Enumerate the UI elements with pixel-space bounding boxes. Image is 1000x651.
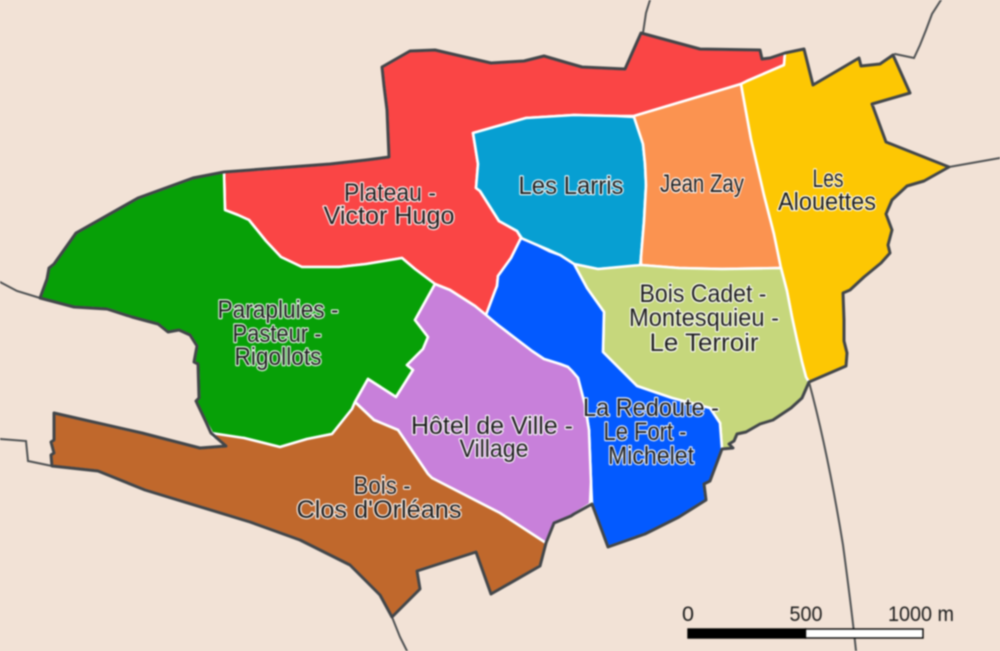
- svg-text:1000 m: 1000 m: [888, 603, 954, 626]
- svg-text:La Redoute -: La Redoute -: [583, 395, 719, 422]
- svg-text:Rigollots: Rigollots: [235, 344, 322, 371]
- svg-text:Le Terroir: Le Terroir: [650, 330, 759, 357]
- svg-text:Bois -: Bois -: [354, 473, 411, 500]
- svg-text:0: 0: [682, 603, 694, 626]
- svg-text:Les Larris: Les Larris: [519, 173, 624, 200]
- svg-text:Clos d'Orléans: Clos d'Orléans: [297, 497, 462, 524]
- svg-text:Le Fort -: Le Fort -: [604, 419, 687, 446]
- svg-text:Parapluies -: Parapluies -: [218, 297, 339, 324]
- svg-text:Victor Hugo: Victor Hugo: [324, 203, 455, 230]
- svg-text:Jean Zay: Jean Zay: [660, 171, 745, 198]
- svg-text:500: 500: [790, 603, 823, 626]
- svg-text:Village: Village: [460, 436, 529, 463]
- svg-text:Montesquieu -: Montesquieu -: [629, 305, 779, 332]
- svg-text:Bois Cadet -: Bois Cadet -: [640, 281, 767, 308]
- svg-text:Michelet: Michelet: [608, 443, 694, 470]
- svg-text:Alouettes: Alouettes: [778, 189, 876, 216]
